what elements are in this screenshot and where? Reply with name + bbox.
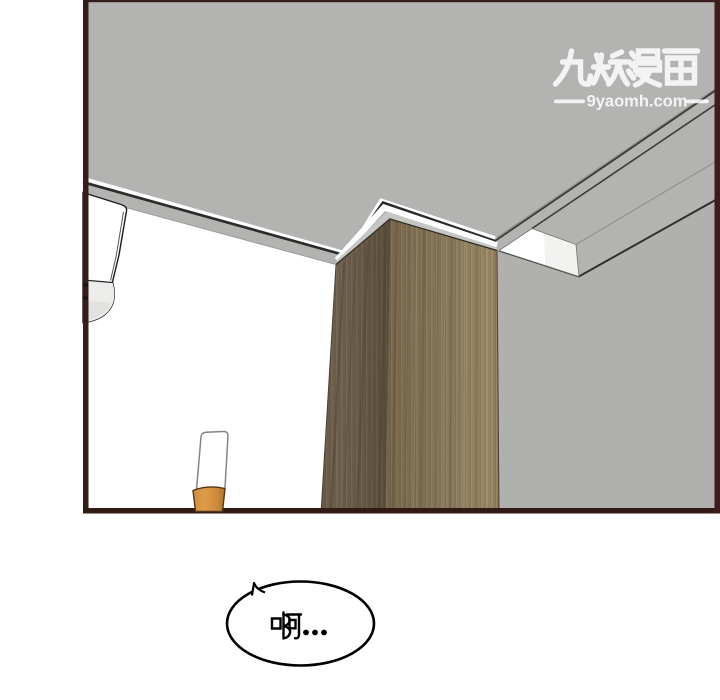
svg-text:9yaomh.com: 9yaomh.com (587, 93, 688, 111)
